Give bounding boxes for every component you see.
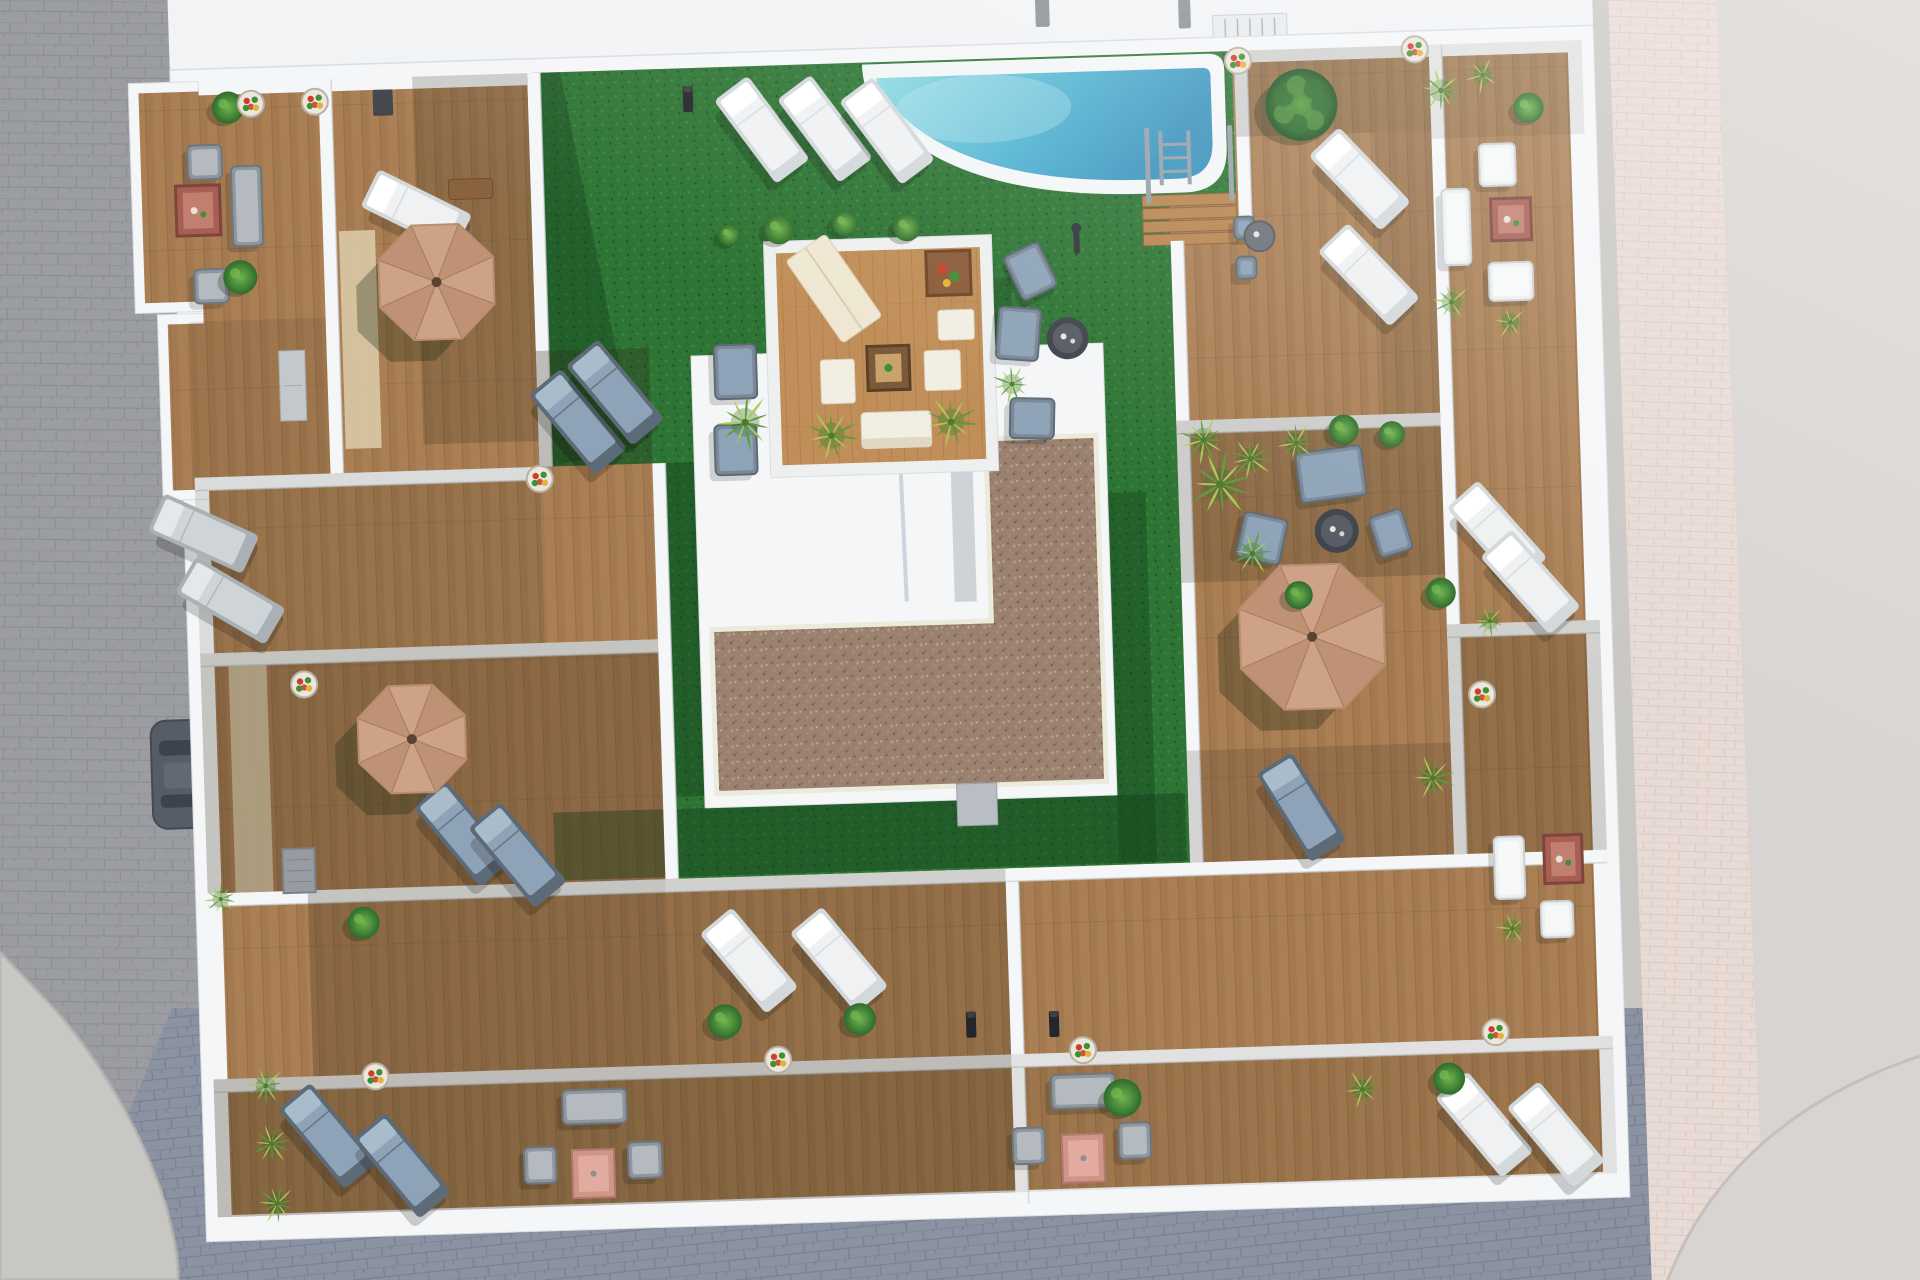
rooftop-terrace-render — [0, 0, 1920, 1280]
sunlight-wash — [0, 0, 1920, 1280]
scene-canvas — [0, 0, 1920, 1280]
